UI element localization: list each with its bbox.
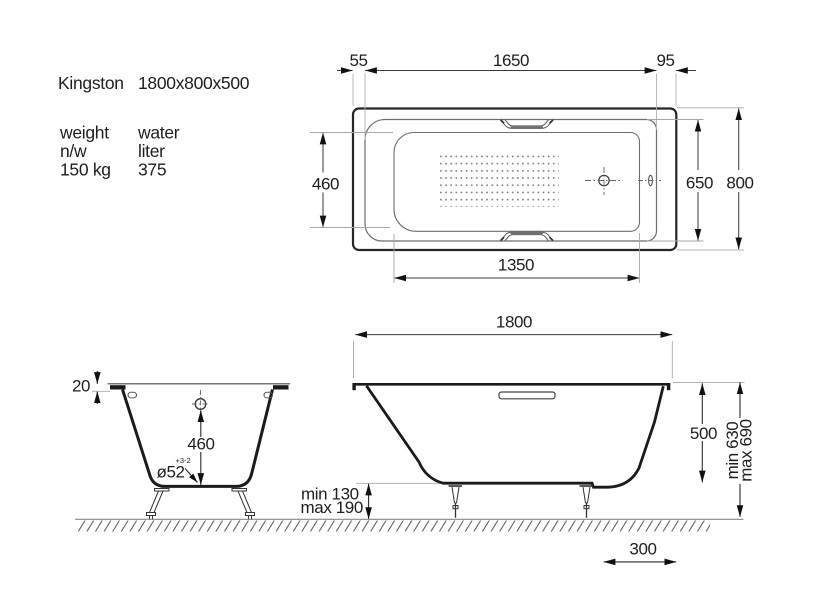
- svg-text:max 190: max 190: [301, 498, 363, 517]
- svg-text:460: 460: [312, 175, 339, 194]
- svg-text:150 kg: 150 kg: [60, 160, 111, 180]
- svg-text:ø52: ø52: [157, 463, 185, 482]
- svg-text:Kingston: Kingston: [58, 73, 124, 93]
- svg-text:1800x800x500: 1800x800x500: [138, 73, 250, 93]
- svg-text:n/w: n/w: [60, 141, 87, 161]
- svg-text:460: 460: [187, 435, 214, 454]
- svg-text:water: water: [137, 123, 180, 143]
- svg-text:95: 95: [656, 51, 674, 70]
- svg-text:55: 55: [349, 51, 367, 70]
- svg-text:650: 650: [686, 174, 713, 193]
- svg-text:500: 500: [690, 424, 717, 443]
- svg-text:+3-2: +3-2: [176, 456, 191, 465]
- svg-text:800: 800: [726, 174, 753, 193]
- svg-text:20: 20: [72, 377, 90, 396]
- svg-text:1650: 1650: [493, 51, 529, 70]
- svg-text:300: 300: [629, 540, 656, 559]
- svg-text:weight: weight: [59, 123, 109, 143]
- svg-text:1350: 1350: [498, 256, 534, 275]
- svg-text:liter: liter: [138, 141, 165, 161]
- svg-text:1800: 1800: [496, 313, 532, 332]
- svg-text:375: 375: [138, 160, 166, 180]
- svg-text:max 690: max 690: [736, 419, 755, 481]
